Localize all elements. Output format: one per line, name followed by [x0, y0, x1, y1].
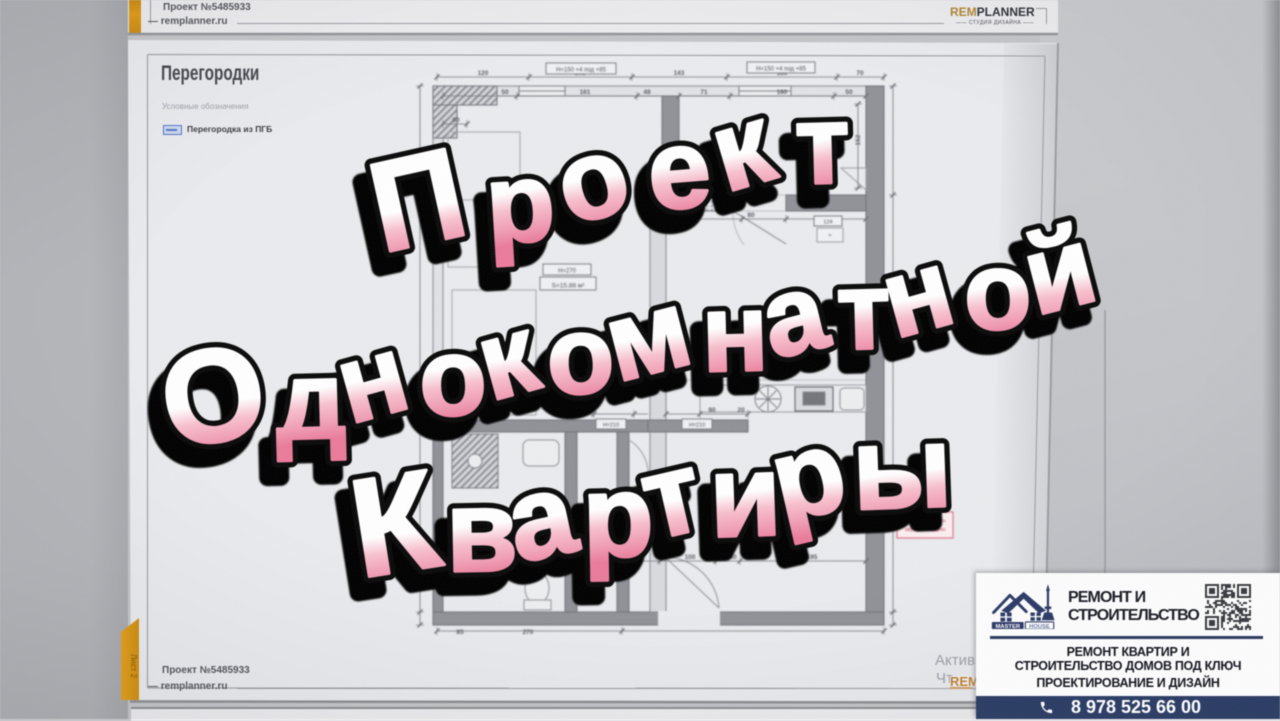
svg-text:HOUSE: HOUSE — [1029, 624, 1050, 629]
svg-text:MASTER: MASTER — [995, 624, 1020, 629]
